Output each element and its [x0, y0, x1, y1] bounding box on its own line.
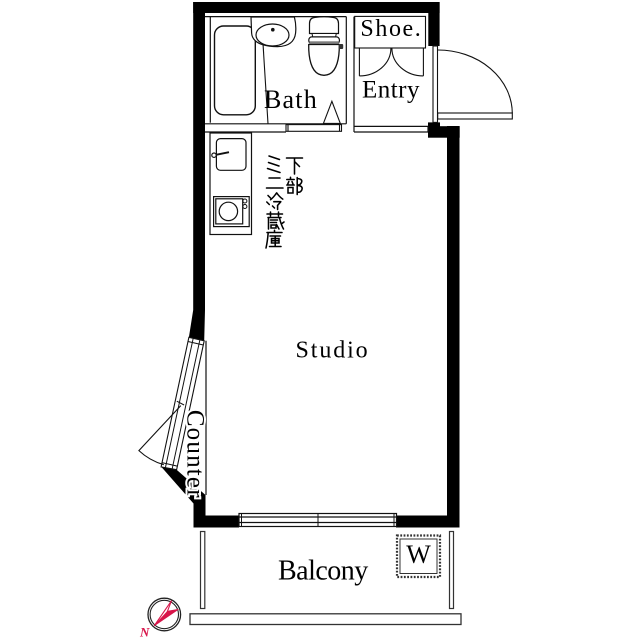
svg-text:Bath: Bath — [264, 85, 318, 114]
svg-text:N: N — [139, 625, 150, 640]
svg-text:W: W — [406, 540, 431, 569]
svg-text:Entry: Entry — [362, 77, 420, 104]
svg-text:Studio: Studio — [296, 338, 370, 364]
svg-text:Balcony: Balcony — [278, 556, 368, 587]
svg-text:Shoe.: Shoe. — [360, 16, 422, 42]
svg-text:Counter: Counter — [182, 410, 209, 499]
